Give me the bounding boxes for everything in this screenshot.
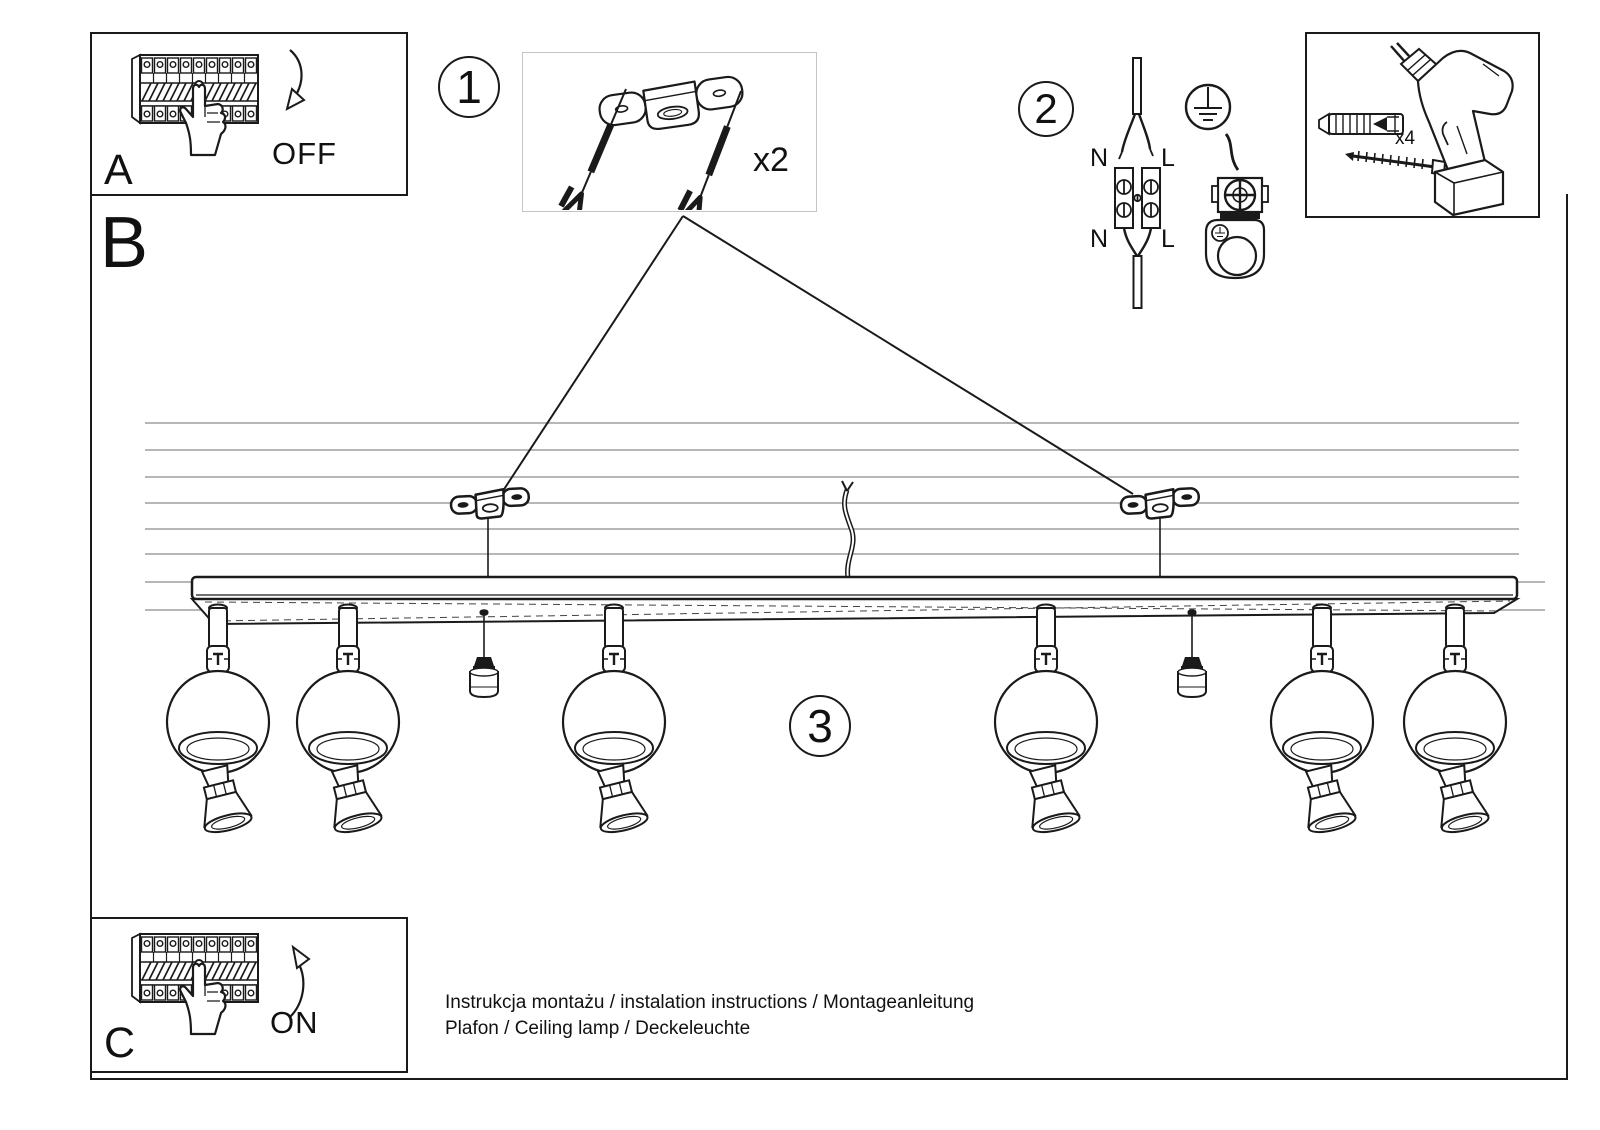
tools-box: x4: [1305, 32, 1540, 218]
step-2-number: 2: [1034, 85, 1057, 133]
step-a-box: A OFF: [90, 32, 408, 196]
arrow-down-head: [287, 89, 304, 109]
instruction-sheet: B A OFF C ON 1: [0, 0, 1600, 1130]
footer-title-line1: Instrukcja montażu / instalation instruc…: [445, 992, 974, 1014]
screw-icon: [1345, 151, 1445, 175]
step-c-letter: C: [104, 1019, 135, 1068]
wire-label-n-top: N: [1090, 144, 1108, 172]
power-off-label: OFF: [272, 136, 337, 172]
breaker-off-drawing: [92, 34, 406, 194]
wall-plug-icon: [1319, 114, 1403, 134]
step-a-letter: A: [104, 146, 133, 195]
wire-label-n-bottom: N: [1090, 225, 1108, 253]
plug-quantity-label: x4: [1395, 128, 1415, 150]
bracket-quantity-label: x2: [753, 141, 789, 180]
breaker-on-drawing: [92, 919, 406, 1071]
earth-wire: [1226, 134, 1238, 170]
footer-title-line2: Plafon / Ceiling lamp / Deckeleuchte: [445, 1018, 750, 1040]
power-on-label: ON: [270, 1005, 319, 1041]
step-1-marker: 1: [438, 56, 500, 118]
section-b-label: B: [100, 202, 148, 284]
earth-clamp-icon: [1206, 178, 1268, 278]
terminal-block-left: [1115, 168, 1133, 228]
bracket-parts-drawing: [523, 53, 815, 210]
step-3-marker: 3: [789, 695, 851, 757]
step-c-box: C ON: [90, 917, 408, 1073]
tools-drawing: [1307, 34, 1538, 216]
grounding-diagram: [1170, 70, 1280, 295]
step-2-marker: 2: [1018, 81, 1074, 137]
step-3-number: 3: [807, 699, 833, 753]
terminal-block-right: [1142, 168, 1160, 228]
step-1-number: 1: [456, 60, 482, 114]
step-1-parts-box: x2: [522, 52, 817, 212]
arrow-up-head: [293, 947, 309, 968]
